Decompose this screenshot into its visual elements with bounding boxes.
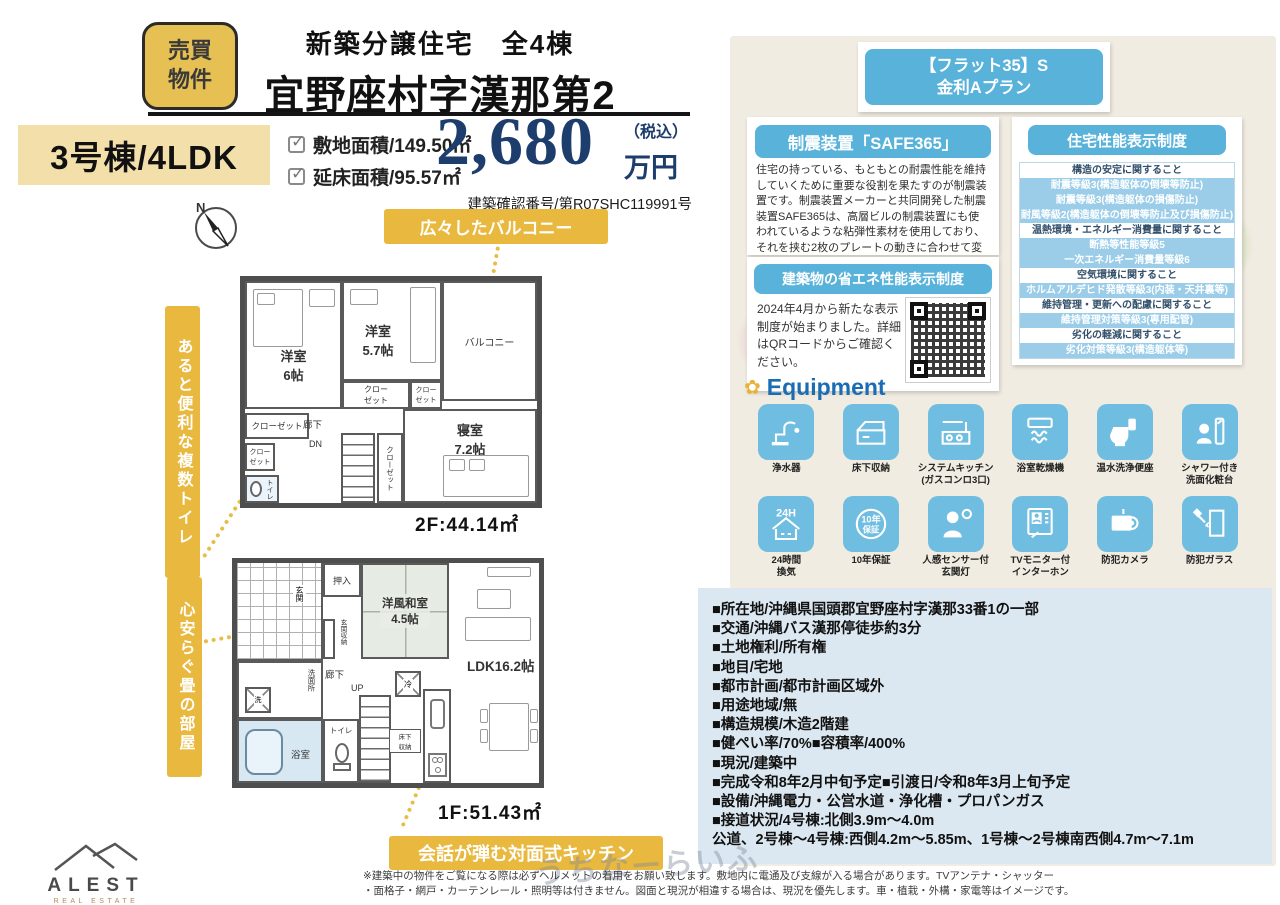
logo-name: ALEST	[26, 875, 166, 897]
room-toilet-1f: トイレ	[323, 719, 359, 783]
compass-icon: N	[188, 200, 240, 252]
stairs-1f	[359, 695, 391, 783]
detail-line: 公道、2号棟〜4号棟:西側4.2m〜5.85m、1号棟〜2号棟南西側4.7m〜7…	[712, 831, 1258, 850]
flat35-line2: 金利Aプラン	[937, 77, 1031, 99]
warranty-10y-icon: 10年 保証	[843, 496, 899, 552]
unit-type-box: 3号棟/4LDK	[18, 125, 270, 185]
desk	[350, 289, 378, 305]
system-kitchen-icon	[928, 404, 984, 460]
svg-text:10年: 10年	[861, 513, 880, 524]
tv-intercom-icon	[1012, 496, 1068, 552]
performance-row: 耐震等級3(構造躯体の損傷防止)	[1020, 193, 1234, 208]
performance-row: 断熱等性能等級5	[1020, 238, 1234, 253]
room-closet: クロー ゼット	[342, 381, 410, 409]
detail-line: ■用途地域/無	[712, 697, 1258, 716]
hibiscus-icon: ✿	[744, 375, 761, 400]
callout-multiple-toilets: あると便利な複数トイレ	[165, 306, 200, 578]
performance-row: 一次エネルギー消費量等級6	[1020, 253, 1234, 268]
property-details-box: ■所在地/沖縄県国頭郡宜野座村字漢那33番1の一部 ■交通/沖縄バス漢那停徒歩約…	[698, 588, 1272, 864]
floor-area-row: 延床面積/95.57㎡	[288, 163, 461, 190]
genkan-storage-box	[323, 619, 335, 659]
equipment-item: システムキッチン (ガスコンロ3口)	[917, 404, 994, 486]
detail-line: ■所在地/沖縄県国頭郡宜野座村字漢那33番1の一部	[712, 601, 1258, 620]
performance-row: 温熱環境・エネルギー消費量に関すること	[1020, 223, 1234, 238]
dn-label: DN	[309, 439, 322, 449]
floor-storage-icon	[843, 404, 899, 460]
room-closet: クロー ゼット	[245, 443, 275, 471]
performance-row: 劣化対策等級3(構造躯体等)	[1020, 343, 1234, 358]
performance-card: 住宅性能表示制度 構造の安定に関すること 耐震等級3(構造躯体の倒壊等防止) 耐…	[1012, 117, 1242, 365]
price-number: 2,680	[436, 102, 594, 181]
room-western57: 洋室 5.7帖	[342, 281, 442, 381]
bath-dryer-icon	[1012, 404, 1068, 460]
dining-table	[489, 703, 529, 751]
equipment-item: TVモニター付 インターホン	[1002, 496, 1079, 578]
disclaimer-line1: ※建築中の物件をご覧になる際は必ずヘルメットの着用をお願い致します。敷地内に電通…	[363, 869, 1083, 884]
logo-subtitle: REAL ESTATE	[26, 898, 166, 905]
detail-line: ■接道状況/4号棟:北側3.9m〜4.0m	[712, 812, 1258, 831]
chair	[530, 729, 538, 743]
detail-line: ■都市計画/都市計画区域外	[712, 678, 1258, 697]
toilet-tank	[333, 763, 351, 771]
fridge: 冷	[395, 671, 421, 697]
qr-eye	[910, 302, 928, 320]
equipment-header: ✿ Equipment	[744, 374, 886, 401]
room-oshiire: 押入	[323, 563, 361, 597]
performance-row: 維持管理対策等級3(専用配管)	[1020, 313, 1234, 328]
tv-board	[487, 567, 531, 577]
pillow	[469, 459, 485, 471]
safe365-title: 制震装置「SAFE365」	[755, 125, 991, 158]
detail-line: ■健ぺい率/70%■容積率/400%	[712, 735, 1258, 754]
qr-code	[905, 297, 991, 383]
performance-row: 維持管理・更新への配慮に関すること	[1020, 298, 1234, 313]
price-tax-note: （税込）	[624, 118, 688, 142]
alest-logo: ALEST REAL ESTATE	[26, 840, 166, 905]
washlet-icon	[1097, 404, 1153, 460]
equipment-item: 浄水器	[748, 404, 825, 486]
equipment-item: シャワー付き 洗面化粧台	[1171, 404, 1248, 486]
detail-line: ■交通/沖縄バス漢那停徒歩約3分	[712, 620, 1258, 639]
performance-row: 劣化の軽減に関すること	[1020, 328, 1234, 343]
detail-line: ■完成令和8年2月中旬予定■引渡日/令和8年3月上旬予定	[712, 774, 1258, 793]
genkan-storage-label: 玄関収納	[337, 619, 347, 645]
security-camera-icon	[1097, 496, 1153, 552]
detail-line: ■土地権利/所有権	[712, 639, 1258, 658]
title-underline	[148, 112, 690, 116]
header-subtitle: 新築分譲住宅 全4棟	[240, 24, 640, 61]
sale-property-badge: 売買 物件	[142, 22, 238, 110]
equipment-item: 24H 24時間 換気	[748, 496, 825, 578]
chair	[480, 729, 488, 743]
bed	[410, 287, 436, 363]
area-1f: 1F:51.43㎡	[438, 798, 542, 825]
toilet-bowl	[335, 743, 349, 763]
callout-balcony: 広々したバルコニー	[384, 209, 608, 244]
checkbox-icon	[288, 168, 305, 185]
table	[477, 589, 511, 609]
chair	[480, 709, 488, 723]
safe365-card: 制震装置「SAFE365」 住宅の持っている、もともとの耐震性能を維持していくた…	[747, 117, 999, 255]
hall-label: 廊下	[325, 667, 344, 681]
area-2f: 2F:44.14㎡	[415, 510, 519, 537]
kitchen-sink	[430, 699, 445, 729]
toilet-bowl	[250, 481, 262, 497]
flyer-page: 売買 物件 新築分譲住宅 全4棟 宜野座村字漢那第2 3号棟/4LDK 敷地面積…	[0, 0, 1280, 905]
svg-text:保証: 保証	[862, 524, 880, 534]
disclaimer-text: ※建築中の物件をご覧になる際は必ずヘルメットの着用をお願い致します。敷地内に電通…	[363, 869, 1083, 899]
water-purifier-icon	[758, 404, 814, 460]
room-tatami: 洋風和室 4.5帖	[361, 563, 449, 659]
performance-row: 耐震等級3(構造躯体の倒壊等防止)	[1020, 178, 1234, 193]
callout-tatami-room: 心安らぐ畳の部屋	[167, 577, 202, 777]
pillow	[449, 459, 465, 471]
room-balcony: バルコニー	[442, 281, 537, 401]
desk	[309, 289, 335, 307]
performance-row: ホルムアルデヒド発散等級3(内装・天井裏等)	[1020, 283, 1234, 298]
equipment-item: 温水洗浄便座	[1087, 404, 1164, 486]
flat35-line1: 【フラット35】S	[920, 55, 1048, 77]
up-label: UP	[351, 683, 364, 693]
ventilation-24h-icon: 24H	[758, 496, 814, 552]
equipment-item: 防犯カメラ	[1087, 496, 1164, 578]
checkbox-icon	[288, 136, 305, 153]
room-closet: クロー ゼット	[410, 381, 442, 409]
room-bedroom: 寝室 7.2帖	[403, 409, 537, 503]
sofa	[465, 617, 531, 641]
stove	[428, 753, 447, 777]
genkan-label: 玄関	[293, 585, 306, 603]
price-unit: 万円	[624, 146, 678, 185]
detail-line: ■構造規模/木造2階建	[712, 716, 1258, 735]
kitchen-counter	[423, 689, 451, 783]
ldk-label: LDK16.2帖	[467, 655, 535, 675]
svg-text:N: N	[196, 200, 205, 215]
flat35-card: 【フラット35】S 金利Aプラン	[858, 42, 1110, 112]
room-closet: クローゼット	[377, 433, 403, 503]
qr-eye	[910, 360, 928, 378]
equipment-grid: 浄水器 床下収納 システムキッチン (ガスコンロ3口)	[748, 404, 1248, 578]
badge-line1: 売買	[168, 37, 212, 66]
equipment-item: 10年 保証 10年保証	[833, 496, 910, 578]
qr-eye	[968, 302, 986, 320]
stairs-2f	[341, 433, 375, 503]
equipment-item: 床下収納	[833, 404, 910, 486]
sensor-light-icon	[928, 496, 984, 552]
safe365-body: 住宅の持っている、もともとの耐震性能を維持していくために重要な役割を果たすのが制…	[756, 163, 990, 272]
washer: 洗	[245, 687, 271, 713]
performance-row: 耐風等級2(構造躯体の倒壊等防止及び損傷防止)	[1020, 208, 1234, 223]
room-western6: 洋室 6帖	[245, 281, 342, 409]
floor-plan-1f: 玄関 押入 洋風和室 4.5帖 玄関収納 LDK16.2帖 洗面所 洗 浴室 ト…	[232, 558, 544, 788]
performance-row: 構造の安定に関すること	[1020, 163, 1234, 178]
performance-table: 構造の安定に関すること 耐震等級3(構造躯体の倒壊等防止) 耐震等級3(構造躯体…	[1019, 162, 1235, 359]
room-closet: クローゼット	[245, 413, 309, 439]
entrance-porch: 玄関	[237, 563, 323, 661]
hall-label: 廊下	[303, 417, 322, 431]
badge-line2: 物件	[168, 66, 212, 95]
bathtub	[245, 729, 283, 775]
equipment-item: 防犯ガラス	[1171, 496, 1248, 578]
equipment-item: 浴室乾燥機	[1002, 404, 1079, 486]
room-toilet-2f: トイレ	[245, 475, 279, 503]
floor-storage-label-box: 床下 収納	[389, 729, 421, 753]
floor-plan-2f: バルコニー 洋室 6帖 洋室 5.7帖 クロー ゼット クロー ゼット 寝室 7…	[240, 276, 542, 508]
chair	[530, 709, 538, 723]
shower-vanity-icon	[1182, 404, 1238, 460]
detail-line: ■地目/宅地	[712, 659, 1258, 678]
energy-card: 建築物の省エネ性能表示制度 2024年4月から新たな表示制度が始まりました。詳細…	[747, 257, 999, 391]
energy-title: 建築物の省エネ性能表示制度	[754, 264, 992, 294]
equipment-title: Equipment	[767, 374, 886, 401]
performance-row: 空気環境に関すること	[1020, 268, 1234, 283]
energy-body: 2024年4月から新たな表示制度が始まりました。詳細はQRコードからご確認くださ…	[757, 301, 903, 371]
detail-line: ■現況/建築中	[712, 755, 1258, 774]
pillow	[257, 293, 275, 305]
disclaimer-line2: ・面格子・網戸・カーテンレール・照明等は付きません。図面と現況が相違する場合は、…	[363, 884, 1083, 899]
performance-title: 住宅性能表示制度	[1028, 125, 1226, 155]
equipment-item: 人感センサー付 玄関灯	[917, 496, 994, 578]
detail-line: ■設備/沖縄電力・公営水道・浄化槽・プロパンガス	[712, 793, 1258, 812]
room-bath: 浴室	[237, 719, 323, 783]
security-glass-icon	[1182, 496, 1238, 552]
